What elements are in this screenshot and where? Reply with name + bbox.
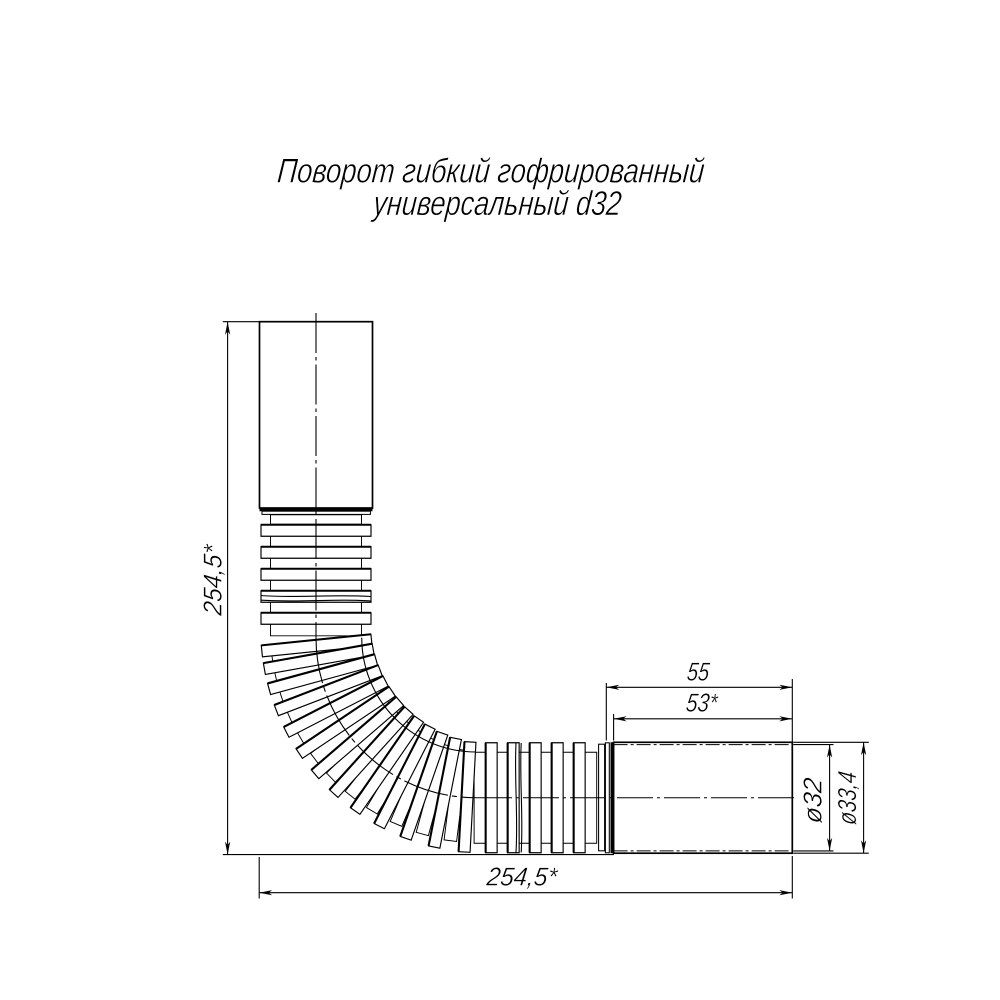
svg-text:55: 55 <box>686 657 712 687</box>
svg-text:254,5*: 254,5* <box>484 862 559 892</box>
svg-text:53*: 53* <box>685 688 720 718</box>
svg-text:универсальный d32: универсальный d32 <box>370 185 623 223</box>
svg-text:ø33,4: ø33,4 <box>832 770 862 827</box>
svg-text:ø32: ø32 <box>798 776 828 825</box>
svg-text:254,5*: 254,5* <box>198 542 228 617</box>
